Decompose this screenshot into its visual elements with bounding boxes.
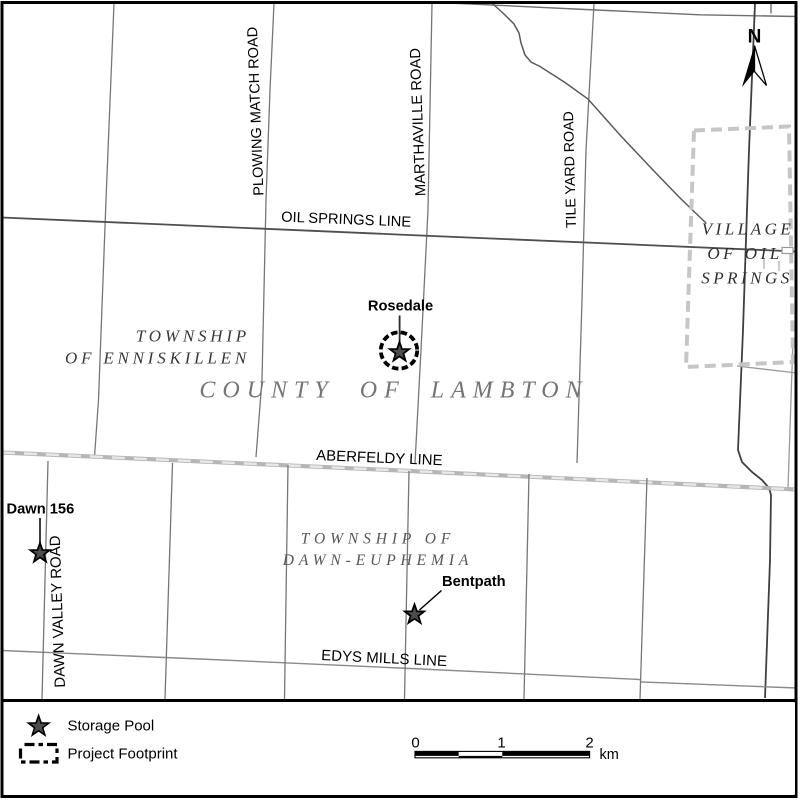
svg-text:Dawn 156: Dawn 156 (7, 502, 75, 518)
svg-text:SPRINGS: SPRINGS (701, 269, 793, 288)
svg-text:km: km (600, 747, 619, 763)
svg-text:TOWNSHIP: TOWNSHIP (136, 327, 250, 346)
svg-text:VILLAGE: VILLAGE (702, 220, 795, 239)
svg-text:OF ENNISKILLEN: OF ENNISKILLEN (65, 349, 250, 368)
svg-text:Project Footprint: Project Footprint (68, 746, 179, 763)
svg-text:OF OIL: OF OIL (707, 244, 782, 263)
svg-text:Bentpath: Bentpath (442, 574, 506, 590)
svg-text:TILE YARD ROAD: TILE YARD ROAD (561, 111, 580, 228)
svg-text:Rosedale: Rosedale (368, 299, 433, 315)
svg-text:DAWN-EUPHEMIA: DAWN-EUPHEMIA (282, 552, 474, 569)
svg-text:0: 0 (411, 735, 419, 752)
svg-text:COUNTY OF LAMBTON: COUNTY OF LAMBTON (199, 378, 588, 404)
svg-text:2: 2 (585, 735, 593, 752)
svg-text:TOWNSHIP OF: TOWNSHIP OF (301, 531, 456, 548)
svg-text:N: N (748, 26, 762, 47)
svg-text:Storage Pool: Storage Pool (68, 718, 155, 735)
svg-text:1: 1 (497, 735, 505, 752)
